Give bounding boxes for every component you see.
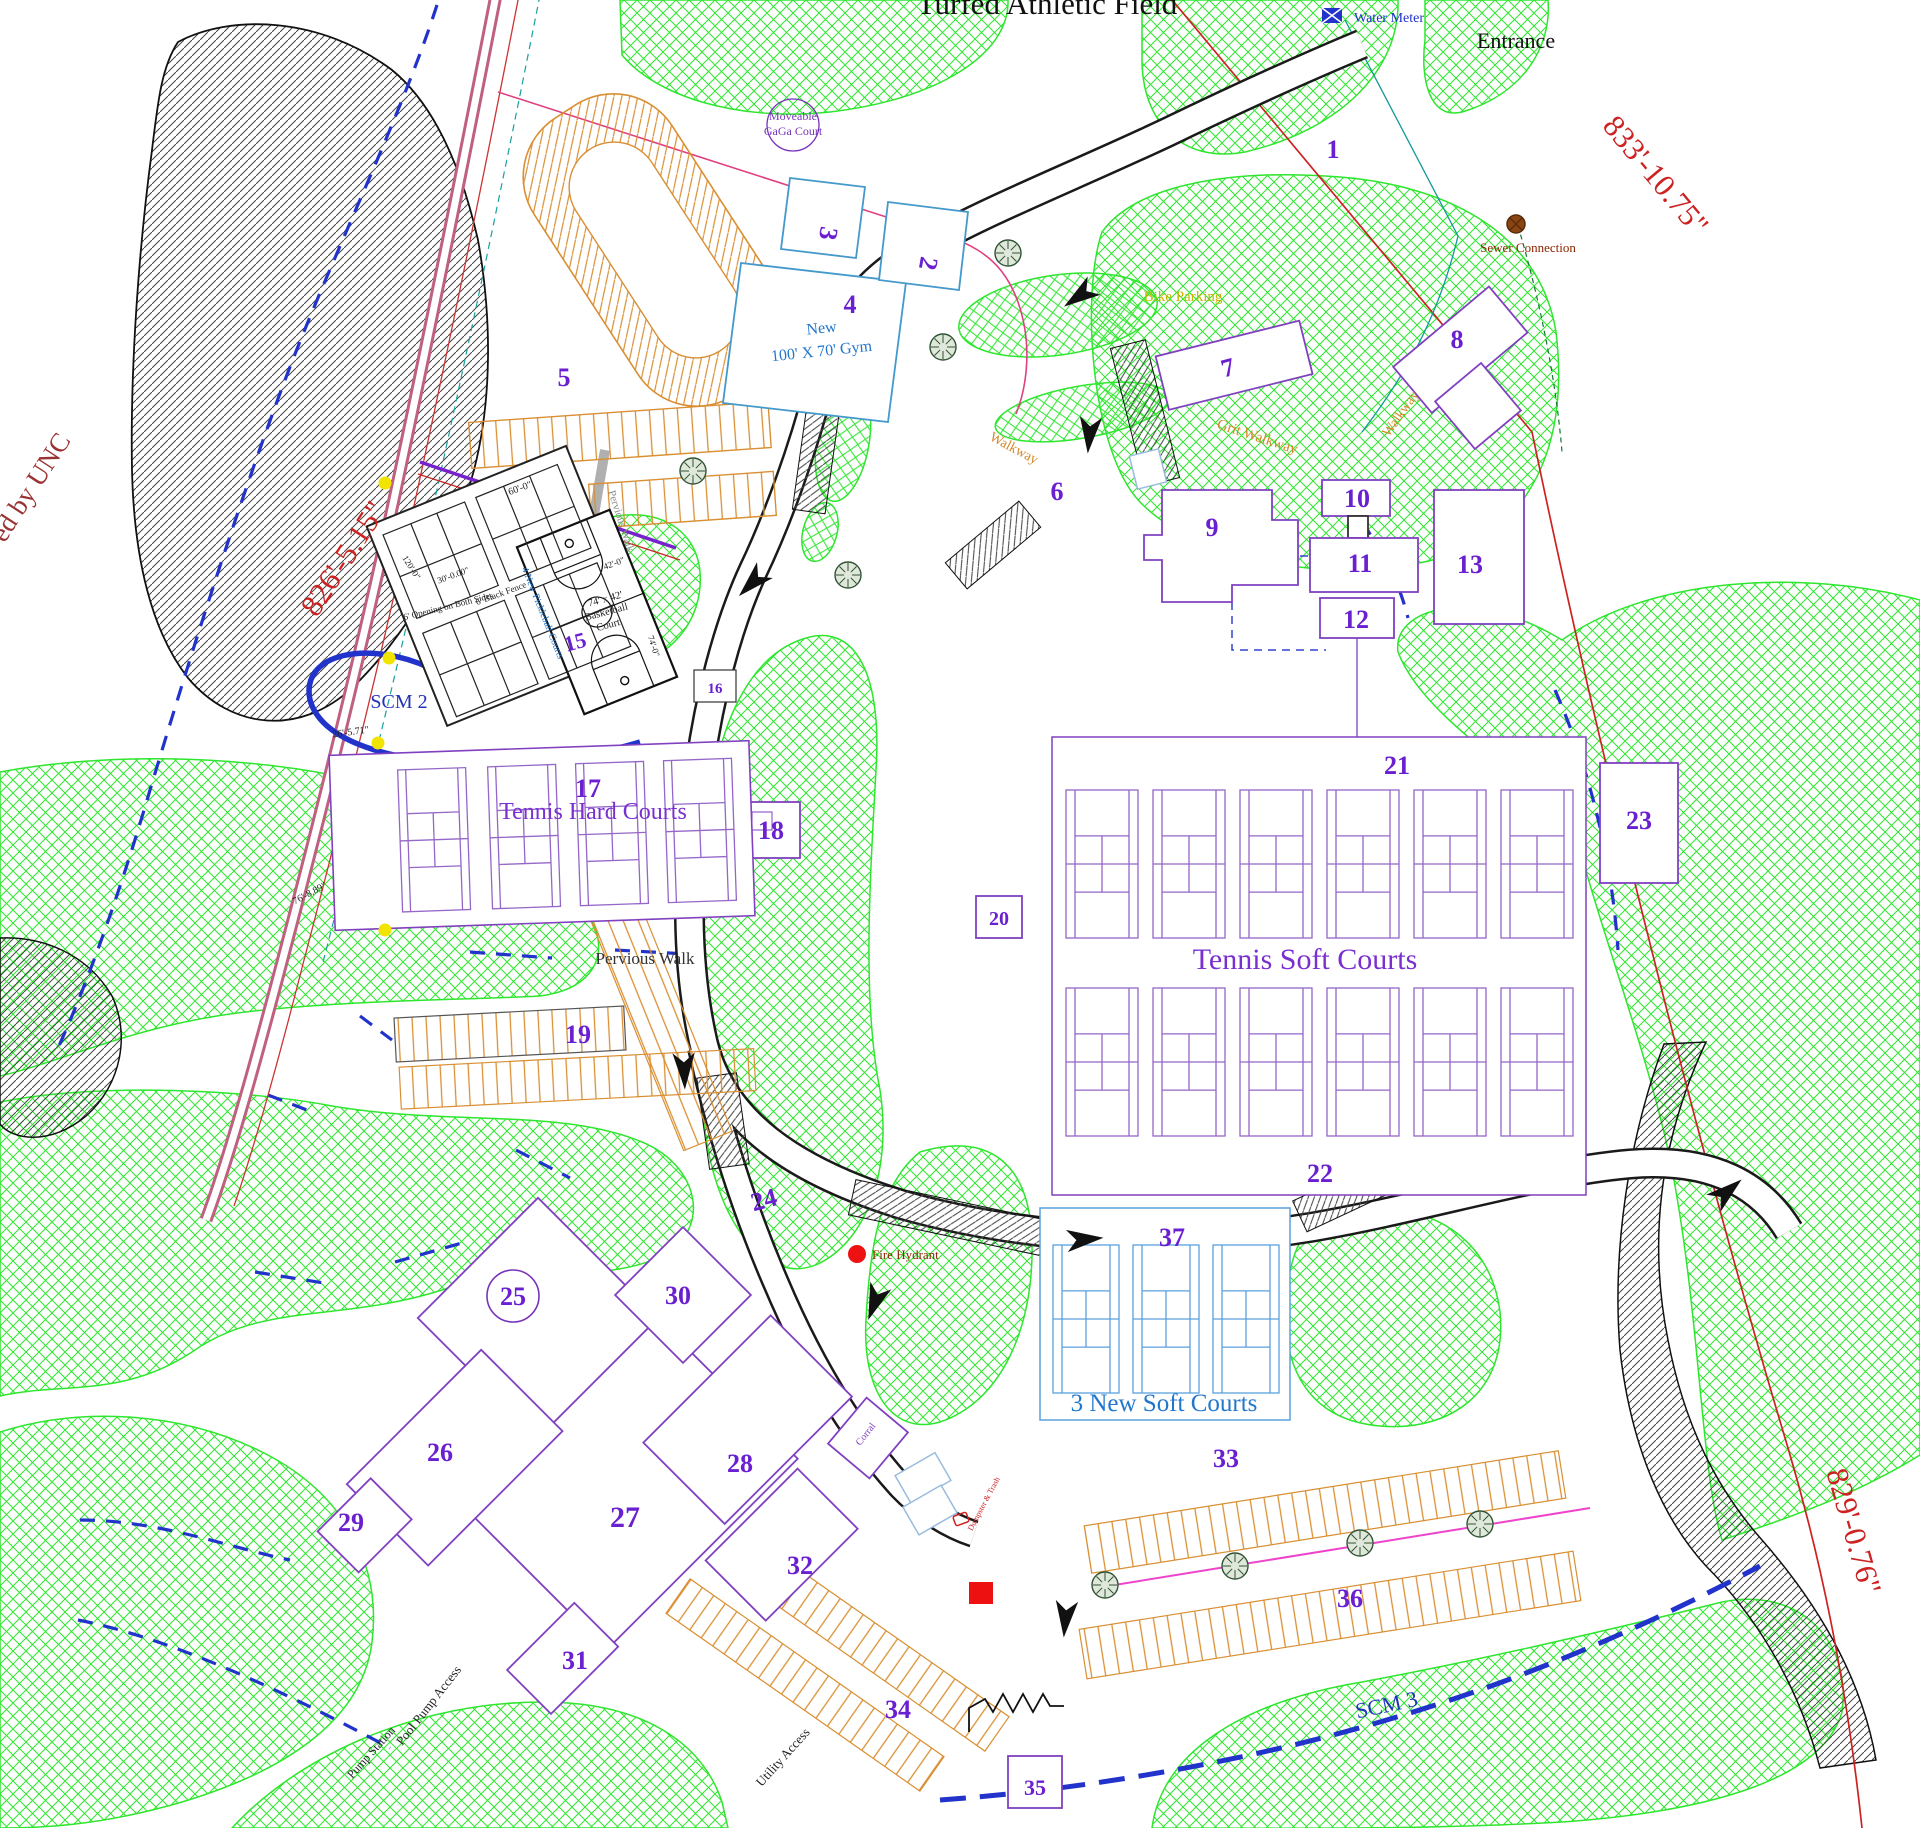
site-number-12: 12	[1343, 605, 1369, 634]
site-number-30: 30	[665, 1281, 691, 1310]
site-number-29: 29	[338, 1508, 364, 1537]
tree-icon	[1467, 1511, 1493, 1537]
tree-icon	[1222, 1553, 1248, 1579]
water-meter-icon	[1322, 8, 1342, 23]
survey-marker-icon	[383, 652, 396, 665]
tree-icon	[1092, 1572, 1118, 1598]
site-number-18: 18	[758, 816, 784, 845]
site-number-17: 17	[575, 774, 601, 803]
site-number-1: 1	[1327, 135, 1340, 164]
site-number-34: 34	[885, 1695, 911, 1724]
tree-icon	[930, 334, 956, 360]
site-number-26: 26	[427, 1438, 453, 1467]
red-square-marker	[969, 1582, 993, 1604]
tree-icon	[835, 562, 861, 588]
site-number-23: 23	[1626, 806, 1652, 835]
site-number-9: 9	[1206, 513, 1219, 542]
site-number-28: 28	[727, 1449, 753, 1478]
gym-label-line1: New	[806, 318, 838, 338]
fire-hydrant-label: Fire Hydrant	[872, 1247, 939, 1262]
site-number-20: 20	[989, 908, 1009, 930]
site-number-21: 21	[1384, 751, 1410, 780]
site-number-37: 37	[1159, 1223, 1185, 1252]
tennis-soft-courts-label: Tennis Soft Courts	[1193, 943, 1418, 976]
building-2	[879, 202, 968, 290]
parking-row-19a	[394, 1006, 626, 1062]
survey-marker-icon	[379, 477, 392, 490]
scm2-label: SCM 2	[370, 691, 427, 713]
site-number-25: 25	[500, 1282, 526, 1311]
new-soft-courts-label: 3 New Soft Courts	[1071, 1390, 1258, 1417]
bike-parking-label: Bike Parking	[1144, 289, 1223, 305]
water-meter-label: Water Meter	[1354, 11, 1424, 26]
site-number-6: 6	[1051, 477, 1064, 506]
boundary-dim-829: 829'-0.76"	[1819, 1464, 1888, 1598]
pervious-walk-label-2: Pervious Walk	[596, 949, 695, 968]
site-number-5: 5	[558, 363, 571, 392]
field-title: Turfed Athletic Field	[917, 0, 1178, 21]
site-number-4: 4	[844, 290, 857, 319]
site-number-11: 11	[1348, 549, 1373, 578]
site-number-13: 13	[1457, 550, 1483, 579]
tree-icon	[680, 458, 706, 484]
survey-marker-icon	[379, 924, 392, 937]
parking-row-5a	[469, 402, 771, 469]
site-number-32: 32	[787, 1551, 813, 1580]
sewer-connection-label: Sewer Connection	[1480, 240, 1576, 255]
site-number-8: 8	[1451, 325, 1464, 354]
tree-icon	[1347, 1530, 1373, 1556]
boundary-dim-833: 833'-10.75"	[1596, 109, 1716, 242]
site-number-31: 31	[562, 1646, 588, 1675]
site-number-10: 10	[1344, 484, 1370, 513]
site-number-19: 19	[565, 1020, 591, 1049]
dumpster-label: Dumpster & Trash	[966, 1475, 1002, 1532]
site-number-35: 35	[1024, 1775, 1046, 1800]
site-plan: Turfed Athletic FieldWater MeterEntrance…	[0, 0, 1920, 1828]
site-number-33: 33	[1213, 1444, 1239, 1473]
flow-arrow-icon	[1053, 1600, 1079, 1639]
building-connector	[1348, 516, 1368, 538]
fire-hydrant-icon	[848, 1245, 866, 1263]
building-3	[781, 178, 865, 258]
utility-access-label: Utility Access	[753, 1725, 813, 1790]
site-number-36: 36	[1337, 1584, 1363, 1613]
gym-building-4	[723, 263, 906, 422]
sewer-connection-icon	[1507, 215, 1525, 233]
site-number-27: 27	[610, 1501, 640, 1534]
maintained-by-unc: ed by UNC	[0, 427, 77, 546]
gaga-court-line1: Moveable	[769, 109, 817, 123]
site-number-22: 22	[1307, 1159, 1333, 1188]
parking-row-36a	[1084, 1451, 1566, 1573]
gaga-court-line2: GaGa Court	[764, 124, 823, 138]
entrance-label: Entrance	[1477, 28, 1555, 53]
survey-marker-icon	[372, 737, 385, 750]
tree-icon	[995, 240, 1021, 266]
site-plan-svg: Turfed Athletic FieldWater MeterEntrance…	[0, 0, 1920, 1828]
site-number-16: 16	[708, 681, 724, 697]
